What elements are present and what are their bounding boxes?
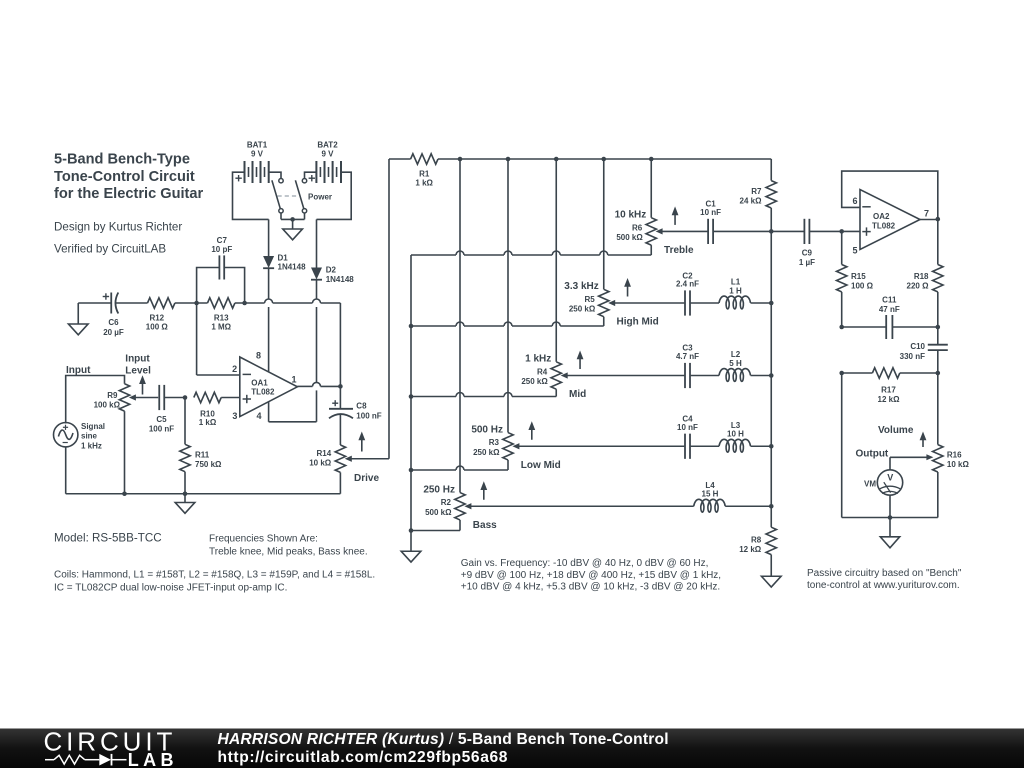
svg-text:Verified by CircuitLAB: Verified by CircuitLAB	[54, 243, 166, 256]
svg-text:47 nF: 47 nF	[879, 305, 900, 314]
svg-text:BAT1: BAT1	[247, 141, 268, 150]
svg-text:10 pF: 10 pF	[211, 245, 232, 254]
svg-text:Signal: Signal	[81, 422, 105, 431]
svg-text:Mid: Mid	[569, 389, 586, 400]
svg-text:500 kΩ: 500 kΩ	[425, 508, 452, 517]
svg-text:Low Mid: Low Mid	[521, 460, 561, 471]
svg-text:1N4148: 1N4148	[278, 263, 307, 272]
svg-text:LAB: LAB	[128, 750, 178, 768]
svg-text:100 nF: 100 nF	[149, 425, 174, 434]
svg-text:R11: R11	[195, 451, 210, 460]
svg-text:BAT2: BAT2	[317, 141, 338, 150]
svg-text:Gain vs. Frequency: -10 dBV @: Gain vs. Frequency: -10 dBV @ 40 Hz, 0 d…	[461, 558, 709, 569]
svg-text:100 kΩ: 100 kΩ	[94, 401, 121, 410]
svg-text:3: 3	[232, 411, 237, 421]
svg-text:220 Ω: 220 Ω	[907, 281, 930, 290]
svg-text:V: V	[887, 472, 893, 482]
svg-text:Output: Output	[856, 449, 889, 460]
svg-text:5-Band Bench-Type: 5-Band Bench-Type	[54, 152, 190, 168]
svg-text:7: 7	[924, 208, 929, 218]
svg-text:Coils: Hammond, L1 = #158T, L2: Coils: Hammond, L1 = #158T, L2 = #158Q, …	[54, 570, 375, 581]
svg-text:5 H: 5 H	[729, 359, 742, 368]
svg-text:10 kHz: 10 kHz	[615, 210, 647, 221]
svg-text:R10: R10	[200, 410, 215, 419]
svg-text:C10: C10	[910, 342, 925, 351]
svg-text:1N4148: 1N4148	[326, 275, 355, 284]
svg-text:tone-control at www.yuriturov.: tone-control at www.yuriturov.com.	[807, 580, 960, 591]
svg-text:R13: R13	[214, 313, 229, 322]
svg-text:R5: R5	[585, 295, 596, 304]
svg-text:Model: RS-5BB-TCC: Model: RS-5BB-TCC	[54, 532, 162, 545]
svg-text:R3: R3	[489, 438, 500, 447]
svg-text:4: 4	[256, 411, 261, 421]
svg-text:R12: R12	[149, 313, 164, 322]
svg-text:1: 1	[291, 375, 296, 385]
svg-text:12 kΩ: 12 kΩ	[739, 545, 762, 554]
svg-text:C8: C8	[356, 401, 367, 410]
svg-text:R1: R1	[419, 170, 430, 179]
svg-text:C11: C11	[882, 295, 897, 304]
svg-text:10 kΩ: 10 kΩ	[947, 460, 970, 469]
svg-text:Frequencies Shown Are:: Frequencies Shown Are:	[209, 534, 318, 545]
svg-text:Drive: Drive	[354, 473, 379, 484]
svg-text:R18: R18	[914, 272, 929, 281]
svg-text:OA1: OA1	[251, 379, 268, 388]
svg-text:C6: C6	[108, 318, 119, 327]
svg-text:IC = TL082CP dual low-noise JF: IC = TL082CP dual low-noise JFET-input o…	[54, 583, 287, 594]
svg-text:100 Ω: 100 Ω	[146, 322, 169, 331]
svg-text:C5: C5	[156, 415, 167, 424]
svg-text:20 µF: 20 µF	[103, 328, 124, 337]
svg-text:15 H: 15 H	[702, 490, 719, 499]
svg-text:Tone-Control Circuit: Tone-Control Circuit	[54, 169, 195, 185]
svg-text:R2: R2	[441, 498, 452, 507]
svg-text:1 kHz: 1 kHz	[525, 354, 551, 365]
svg-text:L4: L4	[705, 481, 715, 490]
svg-text:10 nF: 10 nF	[677, 423, 698, 432]
svg-text:+10 dBV @ 4 kHz, +5.3 dBV @ 10: +10 dBV @ 4 kHz, +5.3 dBV @ 10 kHz, -3 d…	[461, 582, 720, 593]
svg-text:Input: Input	[125, 353, 150, 364]
svg-text:TL082: TL082	[251, 387, 275, 396]
svg-text:R4: R4	[537, 367, 548, 376]
svg-text:10 H: 10 H	[727, 430, 744, 439]
svg-text:http://circuitlab.com/cm229fbp: http://circuitlab.com/cm229fbp56a68	[218, 749, 509, 766]
svg-text:1 µF: 1 µF	[799, 258, 815, 267]
svg-text:4.7 nF: 4.7 nF	[676, 352, 699, 361]
svg-text:250 kΩ: 250 kΩ	[569, 305, 596, 314]
svg-text:250 Hz: 250 Hz	[423, 484, 455, 495]
svg-text:Level: Level	[125, 365, 151, 376]
svg-text:C7: C7	[217, 236, 228, 245]
svg-text:5: 5	[852, 246, 857, 256]
svg-text:2: 2	[232, 364, 237, 374]
svg-text:for the Electric Guitar: for the Electric Guitar	[54, 186, 204, 202]
svg-text:100 Ω: 100 Ω	[851, 281, 874, 290]
svg-text:VM: VM	[864, 479, 876, 488]
svg-text:Power: Power	[308, 192, 332, 201]
svg-text:TL082: TL082	[872, 222, 896, 231]
svg-text:Design by Kurtus Richter: Design by Kurtus Richter	[54, 220, 182, 233]
svg-text:L2: L2	[731, 350, 741, 359]
svg-text:R7: R7	[751, 187, 762, 196]
svg-text:HARRISON RICHTER (Kurtus) / 5-: HARRISON RICHTER (Kurtus) / 5-Band Bench…	[218, 731, 669, 748]
svg-text:1 MΩ: 1 MΩ	[211, 322, 231, 331]
svg-text:500 Hz: 500 Hz	[471, 424, 503, 435]
svg-text:1 H: 1 H	[729, 286, 742, 295]
svg-text:24 kΩ: 24 kΩ	[740, 197, 763, 206]
svg-text:1 kΩ: 1 kΩ	[415, 179, 433, 188]
svg-text:330 nF: 330 nF	[900, 352, 925, 361]
svg-text:R17: R17	[881, 386, 896, 395]
svg-text:1 kHz: 1 kHz	[81, 441, 102, 450]
svg-text:10 kΩ: 10 kΩ	[309, 459, 332, 468]
svg-text:12 kΩ: 12 kΩ	[878, 395, 901, 404]
svg-text:R8: R8	[751, 535, 762, 544]
svg-text:250 kΩ: 250 kΩ	[473, 448, 500, 457]
svg-text:3.3 kHz: 3.3 kHz	[564, 281, 598, 292]
svg-text:C9: C9	[802, 249, 813, 258]
svg-text:9 V: 9 V	[251, 150, 264, 159]
svg-text:10 nF: 10 nF	[700, 208, 721, 217]
svg-text:D1: D1	[278, 253, 289, 262]
svg-text:250 kΩ: 250 kΩ	[521, 377, 548, 386]
svg-text:Treble: Treble	[664, 245, 694, 256]
svg-text:L1: L1	[731, 278, 741, 287]
svg-text:Passive circuitry based on "Be: Passive circuitry based on "Bench"	[807, 568, 962, 579]
svg-text:L3: L3	[731, 421, 741, 430]
svg-text:1 kΩ: 1 kΩ	[199, 418, 217, 427]
svg-text:sine: sine	[81, 432, 98, 441]
svg-text:R15: R15	[851, 272, 866, 281]
svg-text:8: 8	[256, 351, 261, 361]
svg-text:Treble knee, Mid peaks, Bass k: Treble knee, Mid peaks, Bass knee.	[209, 547, 368, 558]
svg-text:Volume: Volume	[878, 425, 914, 436]
svg-text:100 nF: 100 nF	[356, 411, 381, 420]
svg-text:750 kΩ: 750 kΩ	[195, 460, 222, 469]
svg-text:R16: R16	[947, 450, 962, 459]
svg-text:Bass: Bass	[473, 520, 497, 531]
svg-text:9 V: 9 V	[321, 150, 334, 159]
svg-text:OA2: OA2	[873, 212, 890, 221]
svg-text:D2: D2	[326, 266, 337, 275]
svg-text:+9 dBV @ 100 Hz, +18 dBV @ 400: +9 dBV @ 100 Hz, +18 dBV @ 400 Hz, +15 d…	[461, 570, 721, 581]
svg-text:R6: R6	[632, 223, 643, 232]
svg-text:2.4 nF: 2.4 nF	[676, 280, 699, 289]
svg-text:High Mid: High Mid	[617, 317, 659, 328]
svg-text:Input: Input	[66, 365, 91, 376]
svg-text:6: 6	[852, 196, 857, 206]
svg-text:R14: R14	[317, 449, 332, 458]
svg-text:R9: R9	[107, 391, 118, 400]
svg-text:500 kΩ: 500 kΩ	[616, 233, 643, 242]
